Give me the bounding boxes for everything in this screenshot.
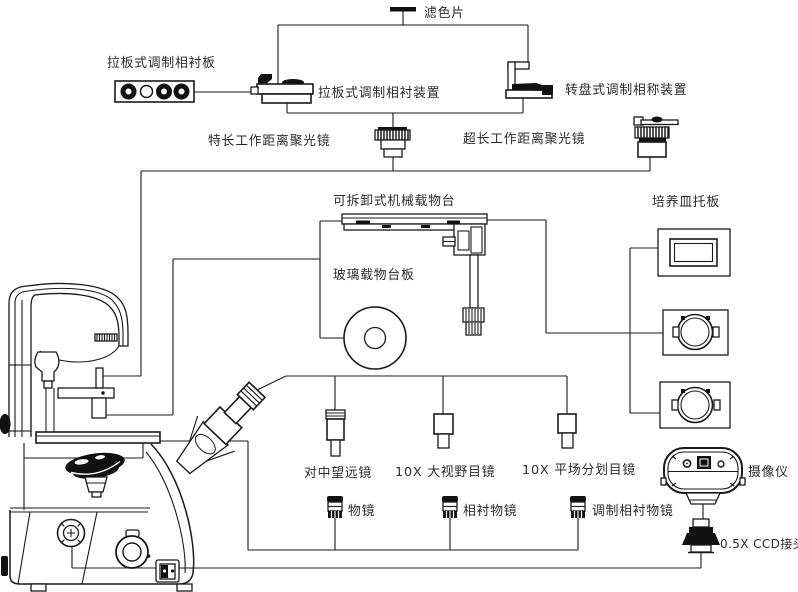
label-filter: 滤色片 xyxy=(424,5,465,21)
label-slider-plate: 拉板式调制相衬板 xyxy=(107,56,216,71)
turret-modulation-device-icon xyxy=(506,62,553,98)
objective-icon xyxy=(327,496,343,518)
diagram-canvas: 滤色片 拉板式调制相衬板 拉板式调制相衬装置 转盘式调制相称装置 特长工作距离聚… xyxy=(0,0,798,592)
label-objective-modulation: 调制相衬物镜 xyxy=(592,504,674,519)
microscope-accessory-diagram: 滤色片 拉板式调制相衬板 拉板式调制相衬装置 转盘式调制相称装置 特长工作距离聚… xyxy=(0,0,798,592)
microscope-icon xyxy=(0,283,276,591)
label-eyepiece-reticle: 10X 平场分划目镜 xyxy=(522,463,636,478)
condenser-extra-long-icon xyxy=(375,127,410,157)
label-camera: 摄像仪 xyxy=(748,465,789,480)
label-mech-stage: 可拆卸式机械载物台 xyxy=(333,193,455,209)
label-turret-device: 转盘式调制相称装置 xyxy=(565,82,687,98)
label-eyepiece-widefield: 10X 大视野目镜 xyxy=(395,465,495,480)
camera-icon xyxy=(661,448,745,504)
glass-stage-plate-icon xyxy=(344,307,406,369)
condenser-ultra-long-icon xyxy=(634,117,678,158)
centering-telescope-icon xyxy=(326,410,345,456)
label-slider-device: 拉板式调制相衬装置 xyxy=(318,86,440,101)
label-telescope: 对中望远镜 xyxy=(304,465,372,481)
slider-modulation-device-icon xyxy=(251,74,313,103)
reticle-eyepiece-icon xyxy=(558,414,576,448)
ccd-adapter-icon xyxy=(682,519,720,553)
label-condenser-long: 特长工作距离聚光镜 xyxy=(208,133,330,149)
connector-objective-group xyxy=(158,441,578,550)
label-ccd-adapter: 0.5X CCD接头 xyxy=(720,536,798,551)
slider-phase-plate-icon xyxy=(115,81,194,102)
petri-tray-icon xyxy=(658,229,730,276)
label-petri-holder: 培养皿托板 xyxy=(652,194,720,210)
label-glass-plate: 玻璃载物台板 xyxy=(333,268,415,283)
petri-clamp-2-icon xyxy=(660,382,730,428)
petri-clamp-1-icon xyxy=(663,310,728,355)
modulation-objective-icon xyxy=(570,496,586,518)
label-condenser-ultra: 超长工作距离聚光镜 xyxy=(463,131,585,147)
filter-icon xyxy=(390,7,416,12)
connector-eyepiece-group xyxy=(257,376,567,415)
label-objective-phase: 相衬物镜 xyxy=(463,504,517,519)
label-objective: 物镜 xyxy=(348,504,375,519)
phase-objective-icon xyxy=(442,496,458,518)
widefield-eyepiece-icon xyxy=(434,414,453,448)
